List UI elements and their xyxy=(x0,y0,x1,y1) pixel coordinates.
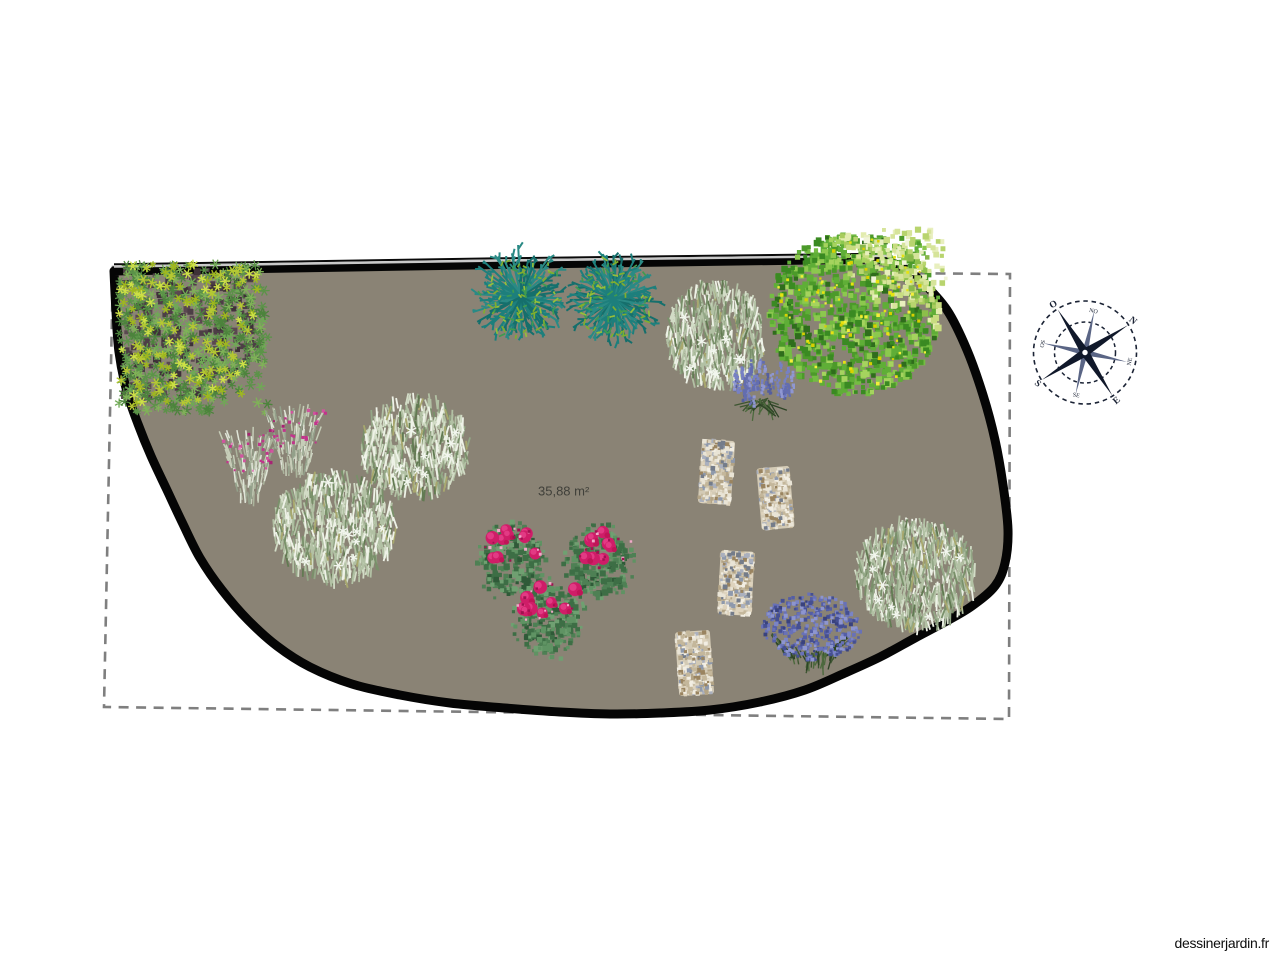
svg-text:35,88 m²: 35,88 m² xyxy=(538,484,590,499)
svg-text:dessinerjardin.fr: dessinerjardin.fr xyxy=(1175,935,1270,951)
